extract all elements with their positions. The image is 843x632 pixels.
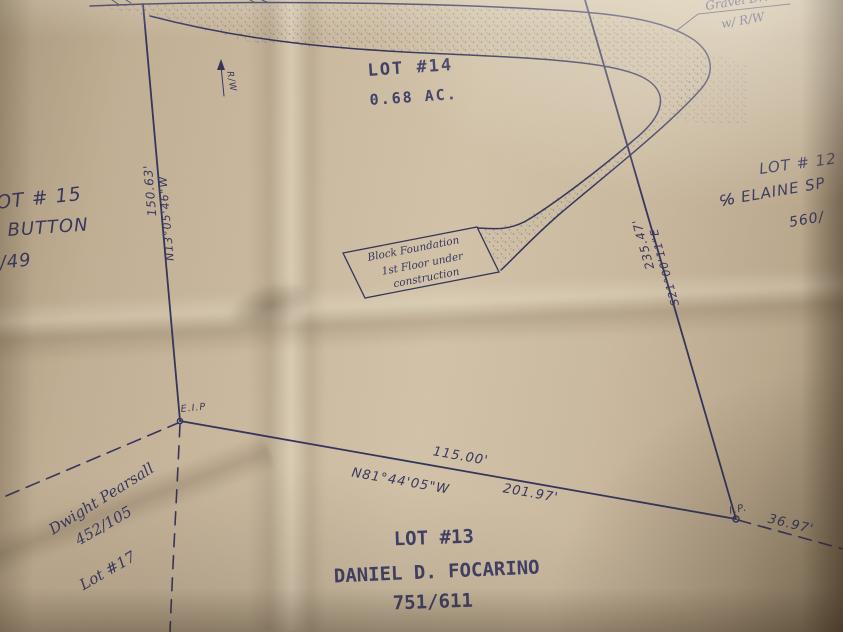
- survey-photo: LOT #14 0.68 AC. LOT #13 DANIEL D. FOCAR…: [0, 0, 843, 632]
- paper-grain-texture: [0, 0, 843, 632]
- plat-drawing: LOT #14 0.68 AC. LOT #13 DANIEL D. FOCAR…: [0, 0, 843, 632]
